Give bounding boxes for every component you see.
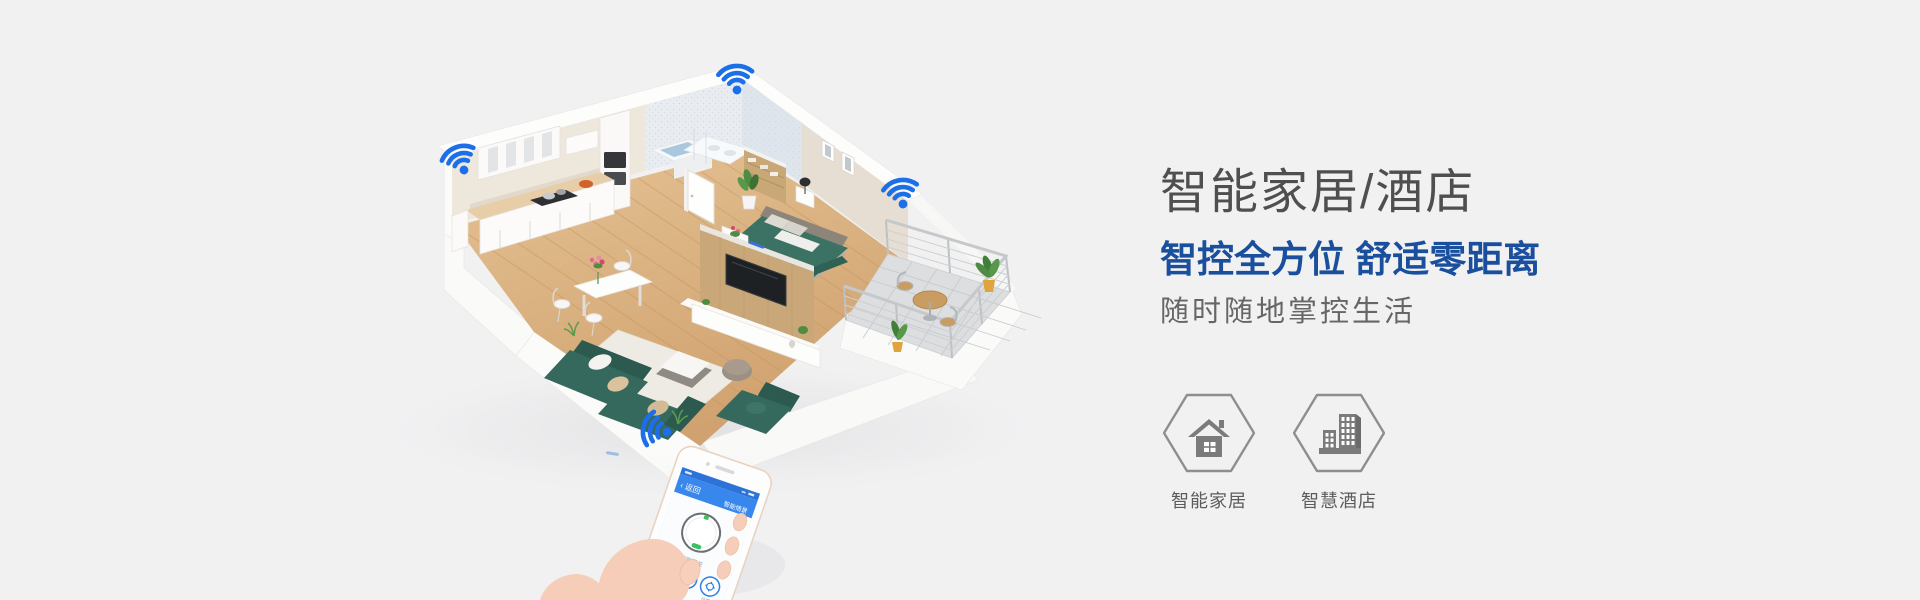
feature-smart-hotel: 智慧酒店: [1286, 392, 1392, 513]
smart-home-banner: ‹ 返回 智能情景 智能开关 开关 情景 设置: [0, 0, 1920, 600]
feature-icons-row: 智能家居 智慧酒店: [1156, 392, 1392, 513]
home-hexagon: [1163, 392, 1255, 474]
hero-subtitle: 智控全方位 舒适零距离: [1160, 240, 1720, 281]
home-icon: [1188, 419, 1230, 457]
hero-title: 智能家居/酒店: [1160, 168, 1720, 218]
hexagon-outline: [1164, 395, 1254, 471]
hero-tagline: 随时随地掌控生活: [1160, 297, 1720, 329]
hotel-buildings-icon: [1319, 414, 1361, 454]
feature-smart-hotel-label: 智慧酒店: [1286, 487, 1392, 513]
hero-text-block: 智能家居/酒店 智控全方位 舒适零距离 随时随地掌控生活: [1160, 168, 1720, 329]
feature-smart-home-label: 智能家居: [1156, 487, 1262, 513]
feature-smart-home: 智能家居: [1156, 392, 1262, 513]
hotel-hexagon: [1293, 392, 1385, 474]
